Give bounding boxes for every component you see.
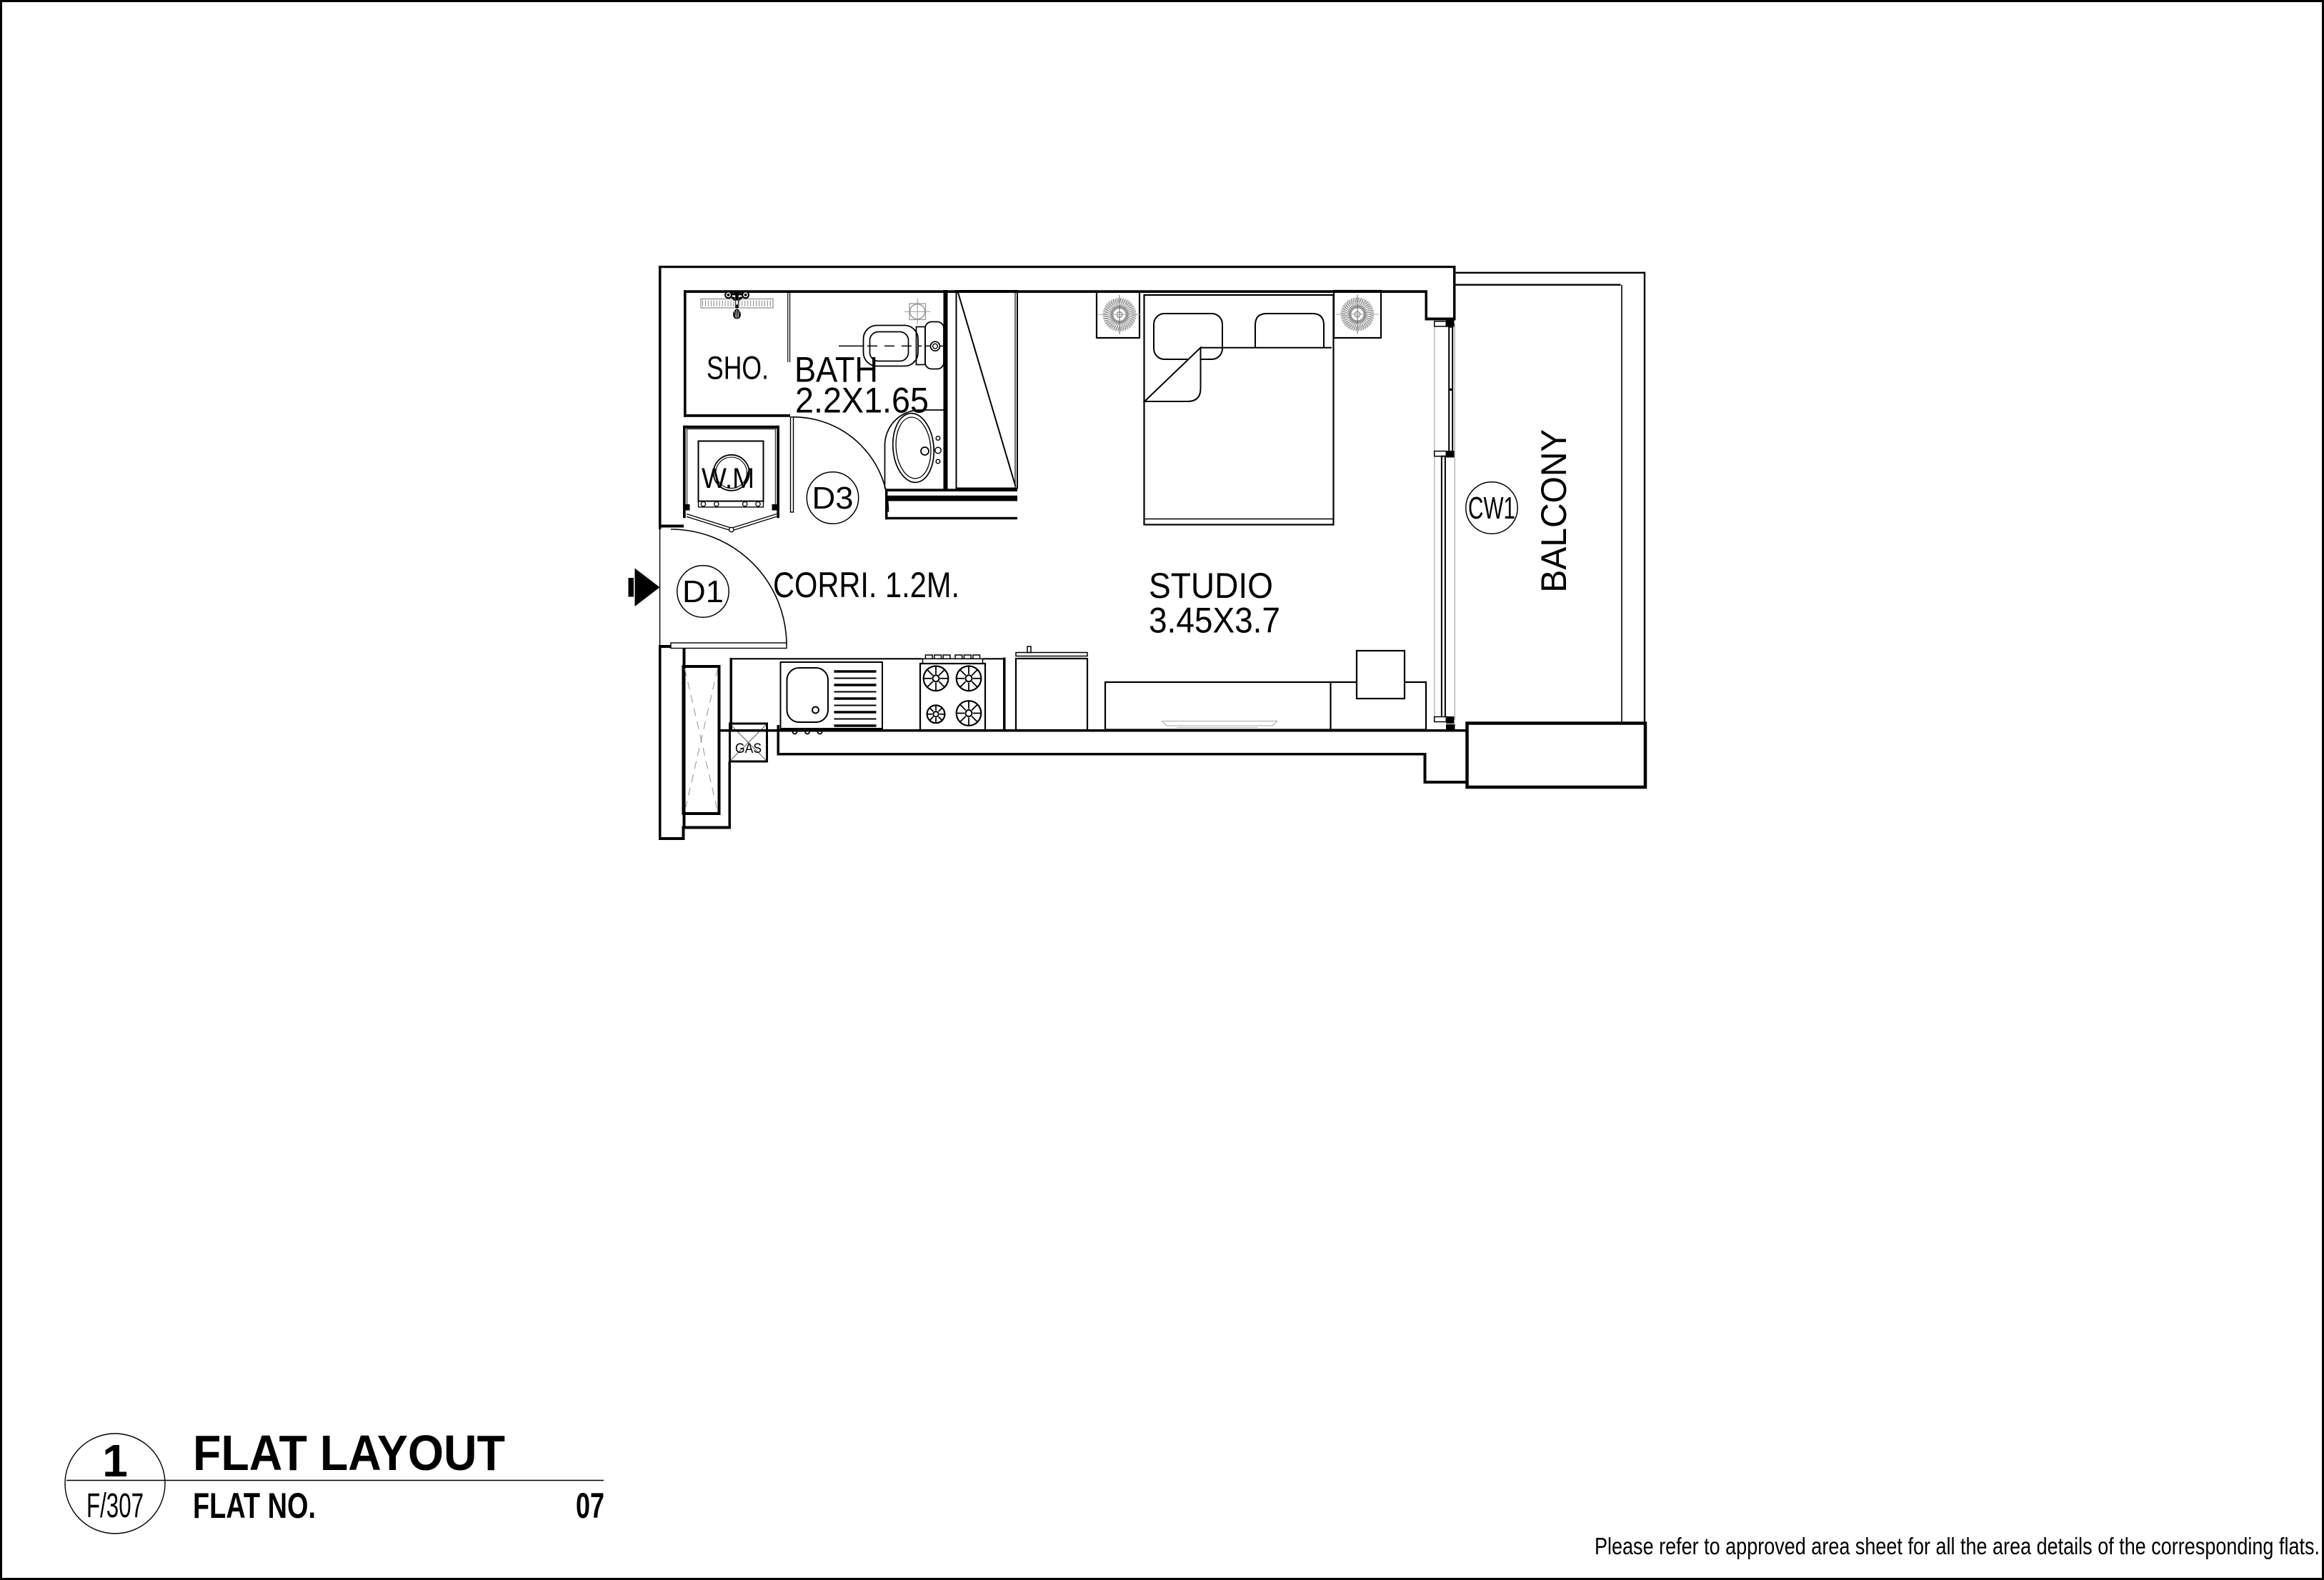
svg-text:Please refer to approved area: Please refer to approved area sheet for … <box>1595 1533 2320 1559</box>
svg-text:07: 07 <box>576 1486 604 1526</box>
svg-text:D3: D3 <box>812 481 854 516</box>
svg-text:3.45X3.7: 3.45X3.7 <box>1149 600 1280 641</box>
svg-text:F/307: F/307 <box>86 1487 144 1525</box>
svg-text:2.2X1.65: 2.2X1.65 <box>795 380 929 421</box>
svg-text:FLAT NO.: FLAT NO. <box>193 1486 316 1526</box>
svg-text:GAS: GAS <box>735 741 762 756</box>
svg-text:CORRI. 1.2M.: CORRI. 1.2M. <box>773 564 959 605</box>
svg-text:D1: D1 <box>682 574 724 609</box>
svg-text:CW1: CW1 <box>1468 491 1515 526</box>
svg-text:W.M: W.M <box>702 463 754 494</box>
svg-text:BALCONY: BALCONY <box>1533 429 1574 593</box>
svg-text:FLAT LAYOUT: FLAT LAYOUT <box>193 1425 505 1481</box>
svg-text:SHO.: SHO. <box>707 350 769 386</box>
svg-text:1: 1 <box>102 1435 128 1486</box>
